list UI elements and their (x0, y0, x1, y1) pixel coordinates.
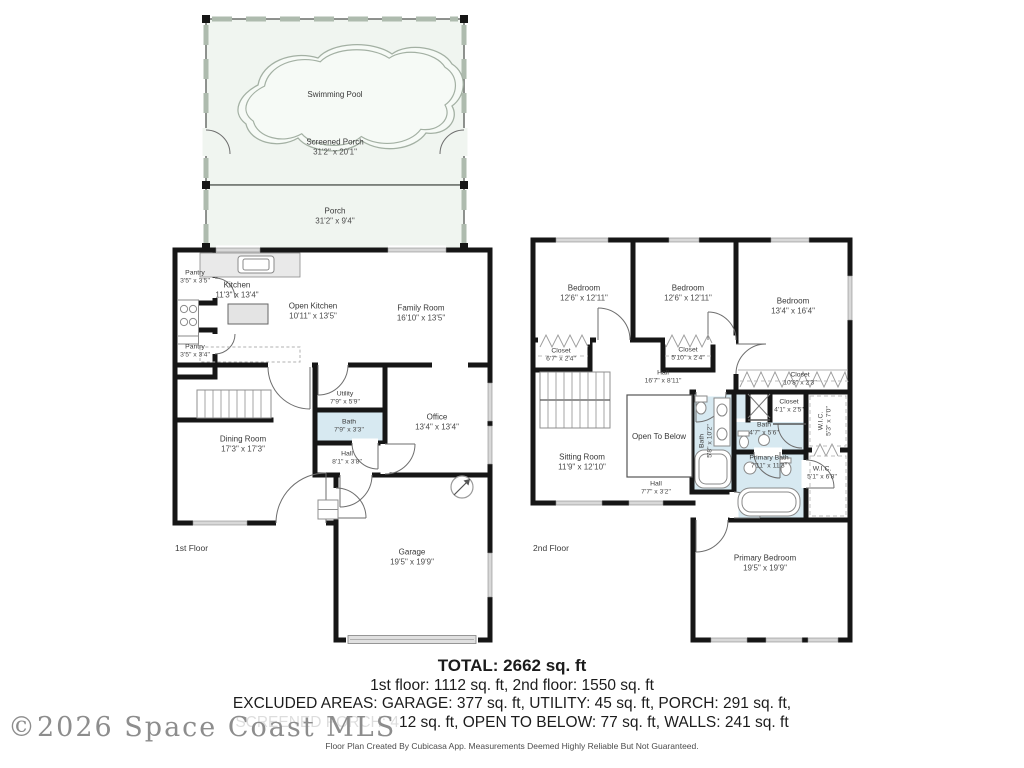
room-label-wic-upper: W.I.C. 5'3" x 7'0" (818, 406, 835, 436)
room-label-wic-lower: W.I.C. 5'1" x 6'8" (807, 466, 837, 483)
room-label-office: Office 13'4" x 13'4" (415, 413, 459, 434)
room-label-primary-bath: Primary Bath 7'11" x 11'3" (749, 455, 788, 472)
excluded-areas-line1: EXCLUDED AREAS: GARAGE: 377 sq. ft, UTIL… (0, 695, 1024, 713)
room-label-primary-bedroom: Primary Bedroom 19'5" x 19'9" (734, 554, 796, 575)
room-label-kitchen: Kitchen 11'3" x 13'4" (215, 281, 258, 302)
room-label-pantry-top: Pantry 3'5" x 3'5" (180, 270, 210, 287)
room-label-sitting-room: Sitting Room 11'9" x 12'10" (558, 453, 606, 474)
room-label-closet-middle: Closet 5'10" x 2'4" (671, 347, 705, 364)
room-label-swimming-pool: Swimming Pool (307, 90, 362, 100)
shower-icon (748, 394, 770, 418)
room-label-pantry-bottom: Pantry 3'5" x 3'4" (180, 344, 210, 361)
room-label-closet-left: Closet 6'7" x 2'4" (546, 348, 576, 365)
room-label-bath-small: Bath 4'7" x 5'6" (749, 422, 779, 439)
floor-plan-drawing (0, 0, 1024, 768)
room-label-hall-upper: Hall 16'7" x 8'11" (645, 370, 682, 387)
room-label-dining-room: Dining Room 17'3" x 17'3" (220, 435, 266, 456)
room-label-porch: Porch 31'2" x 9'4" (315, 207, 354, 228)
room-label-open-kitchen: Open Kitchen 10'11" x 13'5" (289, 302, 337, 323)
mls-watermark: ©2026 Space Coast MLS (4, 712, 400, 743)
room-label-screened-porch: Screened Porch 31'2" x 20'1" (306, 138, 363, 159)
room-label-hall1: Hall 8'1" x 3'8" (332, 451, 362, 468)
stairs-floor1 (197, 390, 271, 418)
north-compass-icon (451, 476, 473, 498)
total-area: TOTAL: 2662 sq. ft (0, 656, 1024, 676)
room-label-bedroom-middle: Bedroom 12'6" x 12'11" (664, 284, 712, 305)
room-label-garage: Garage 19'5" x 19'9" (390, 548, 434, 569)
room-label-closet-right: Closet 10'8" x 2'3" (783, 372, 817, 389)
room-label-family-room: Family Room 16'10" x 13'5" (397, 304, 445, 325)
room-label-bath1: Bath 7'9" x 3'3" (334, 419, 364, 436)
room-label-closet-small: Closet 4'1" x 2'5" (774, 399, 804, 416)
floor-plan-page: Swimming Pool Screened Porch 31'2" x 20'… (0, 0, 1024, 768)
floor1-tag: 1st Floor (175, 543, 208, 553)
room-label-bedroom-right: Bedroom 13'4" x 16'4" (771, 297, 815, 318)
floor-areas: 1st floor: 1112 sq. ft, 2nd floor: 1550 … (0, 677, 1024, 695)
room-label-bedroom-left: Bedroom 12'6" x 12'11" (560, 284, 608, 305)
floor2-tag: 2nd Floor (533, 543, 569, 553)
room-label-open-to-below: Open To Below (632, 432, 686, 442)
room-label-hall-lower: Hall 7'7" x 3'2" (641, 481, 671, 498)
room-label-bath-shared: Bath 5'8" x 10'2" (699, 424, 716, 458)
room-label-utility: Utility 7'9" x 5'9" (330, 391, 360, 408)
